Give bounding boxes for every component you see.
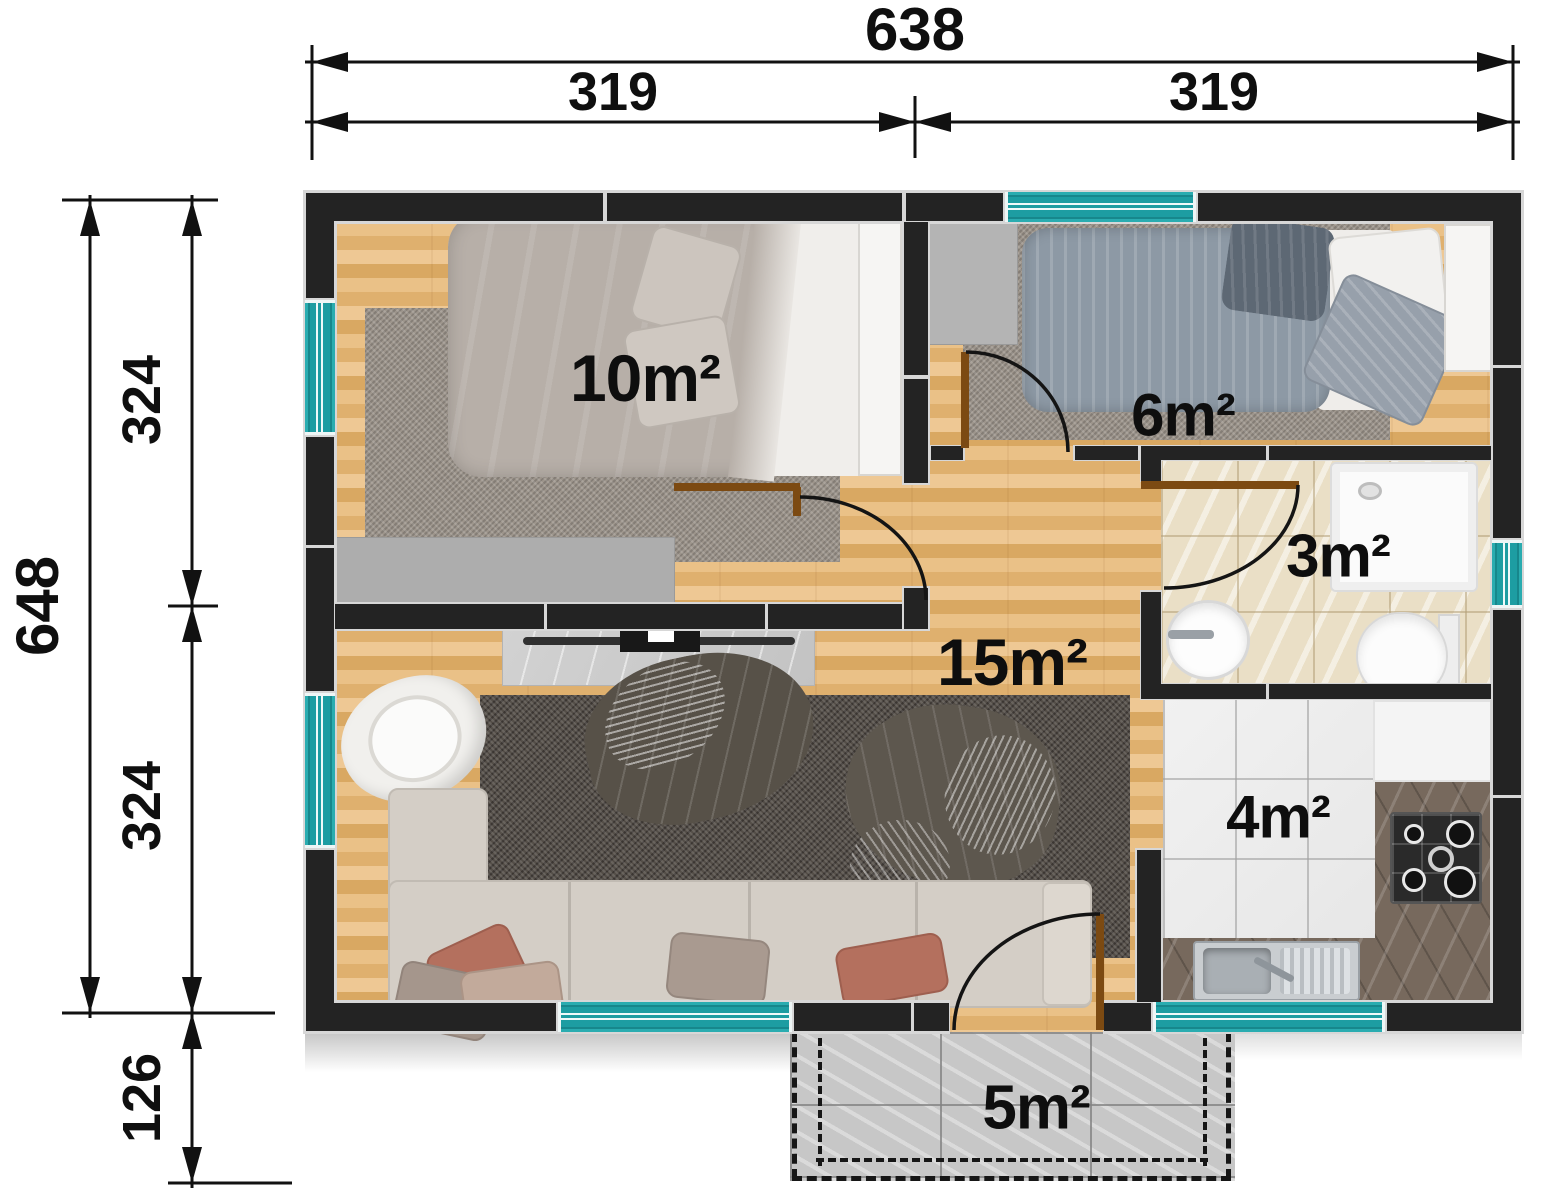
door-leaves (674, 352, 1299, 1030)
door-arc-bedroom2 (966, 352, 1068, 452)
dimension-arrows (80, 52, 1513, 1183)
dim-width-total: 638 (865, 0, 965, 63)
door-arcs (800, 352, 1298, 1030)
door-arc-bedroom1 (800, 497, 926, 600)
dim-width-right: 319 (1169, 62, 1259, 122)
plan-overlay: 638 319 319 648 324 324 126 (0, 0, 1556, 1194)
dim-terrace-depth: 126 (112, 1053, 172, 1143)
dim-height-lower: 324 (112, 761, 172, 851)
floor-plan: 10m² 6m² 3m² 15m² 4m² 5m² (0, 0, 1556, 1194)
dim-width-left: 319 (568, 62, 658, 122)
dimension-extension-lines (62, 45, 1520, 1188)
dim-height-total: 648 (4, 556, 71, 656)
door-arc-bathroom (1164, 485, 1298, 588)
door-arc-entry (954, 914, 1100, 1030)
dim-height-upper: 324 (112, 355, 172, 445)
